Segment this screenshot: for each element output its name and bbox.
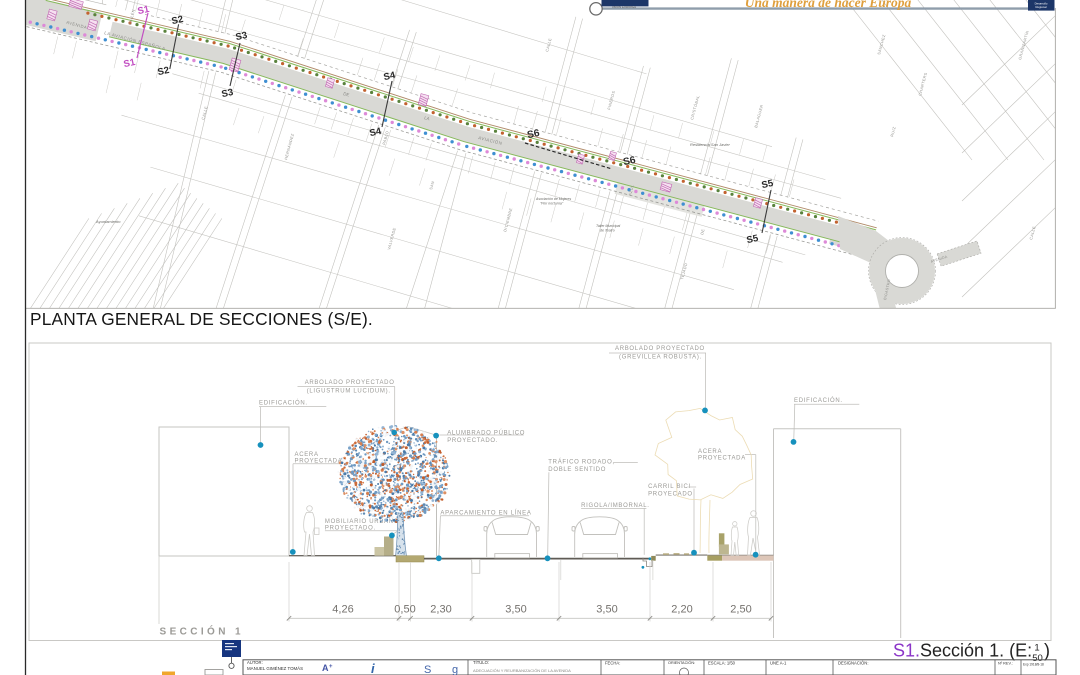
svg-text:(GREVILLEA ROBUSTA).: (GREVILLEA ROBUSTA).: [619, 354, 702, 360]
svg-text:EDIFICACIÓN.: EDIFICACIÓN.: [794, 397, 843, 404]
svg-text:3,50: 3,50: [505, 604, 526, 616]
svg-text:"Flor nocturna": "Flor nocturna": [540, 202, 564, 206]
svg-text:Ayuntamiento: Ayuntamiento: [95, 219, 121, 224]
svg-text:Regional: Regional: [1035, 5, 1046, 9]
svg-text:2,20: 2,20: [671, 604, 692, 616]
svg-text:S1.Sección 1. (E:: S1.Sección 1. (E:: [893, 641, 1032, 661]
svg-text:ORIENTACIÓN:: ORIENTACIÓN:: [668, 660, 695, 665]
svg-text:APARCAMIENTO EN LÍNEA: APARCAMIENTO EN LÍNEA: [440, 509, 531, 516]
svg-text:ACERA: ACERA: [698, 449, 722, 455]
svg-text:FECHA:: FECHA:: [605, 661, 620, 666]
svg-text:EDIFICACIÓN.: EDIFICACIÓN.: [259, 400, 308, 407]
svg-text:de Teatro: de Teatro: [600, 229, 615, 233]
svg-text:PROYECADO: PROYECADO: [648, 491, 693, 497]
svg-text:DESIGNACIÓN:: DESIGNACIÓN:: [838, 661, 868, 666]
svg-text:Exp 1918/8-18: Exp 1918/8-18: [1023, 663, 1044, 667]
svg-text:ARBOLADO PROYECTADO: ARBOLADO PROYECTADO: [305, 380, 395, 386]
svg-text:S: S: [424, 664, 431, 675]
svg-text:A: A: [322, 663, 329, 673]
svg-text:PROYECTADA: PROYECTADA: [698, 455, 746, 461]
svg-text:2,30: 2,30: [430, 604, 451, 616]
svg-text:ESCALA: 1/50: ESCALA: 1/50: [708, 661, 736, 666]
svg-text:+: +: [329, 664, 333, 670]
svg-text:ARBOLADO PROYECTADO: ARBOLADO PROYECTADO: [615, 346, 705, 352]
svg-text:2,50: 2,50: [730, 604, 751, 616]
svg-text:CARRIL BICI: CARRIL BICI: [648, 484, 691, 490]
svg-text:4,26: 4,26: [332, 604, 353, 616]
svg-text:TRÁFICO RODADO,: TRÁFICO RODADO,: [548, 458, 615, 465]
svg-text:g: g: [452, 664, 458, 675]
svg-text:3,50: 3,50: [596, 604, 617, 616]
svg-text:Residencia San Javier: Residencia San Javier: [690, 142, 730, 147]
svg-text:ACERA: ACERA: [295, 452, 319, 458]
svg-text:Taller Municipal: Taller Municipal: [596, 224, 620, 228]
svg-text:PROYECTADO.: PROYECTADO.: [447, 438, 498, 444]
svg-text:DOBLE SENTIDO: DOBLE SENTIDO: [548, 467, 606, 473]
svg-text:RIGOLA/IMBORNAL.: RIGOLA/IMBORNAL.: [581, 503, 650, 509]
svg-text:SECCIÓN 1: SECCIÓN 1: [160, 625, 245, 638]
svg-text:1: 1: [1034, 643, 1039, 654]
svg-text:i: i: [371, 661, 375, 675]
svg-text:MANUEL GIMÉNEZ TOMÁS: MANUEL GIMÉNEZ TOMÁS: [247, 666, 303, 671]
svg-text:): ): [1044, 641, 1050, 661]
svg-text:TÍTULO:: TÍTULO:: [473, 660, 489, 665]
svg-text:AUTOR:: AUTOR:: [247, 660, 263, 665]
svg-text:0,50: 0,50: [394, 604, 415, 616]
svg-text:Una manera de hacer Europa: Una manera de hacer Europa: [745, 0, 912, 10]
svg-text:Nº REV.:: Nº REV.:: [998, 662, 1013, 666]
svg-text:PLANTA GENERAL DE SECCIONES (S: PLANTA GENERAL DE SECCIONES (S/E).: [30, 309, 373, 329]
svg-text:(LIGUSTRUM LUCIDUM).: (LIGUSTRUM LUCIDUM).: [307, 388, 391, 394]
svg-text:Asociación de Mujeres: Asociación de Mujeres: [535, 197, 571, 201]
svg-text:ADECUACIÓN Y REURBANIZACIÓN DE: ADECUACIÓN Y REURBANIZACIÓN DE LA AVENID…: [473, 668, 571, 673]
svg-text:UNE A-1: UNE A-1: [770, 661, 787, 666]
